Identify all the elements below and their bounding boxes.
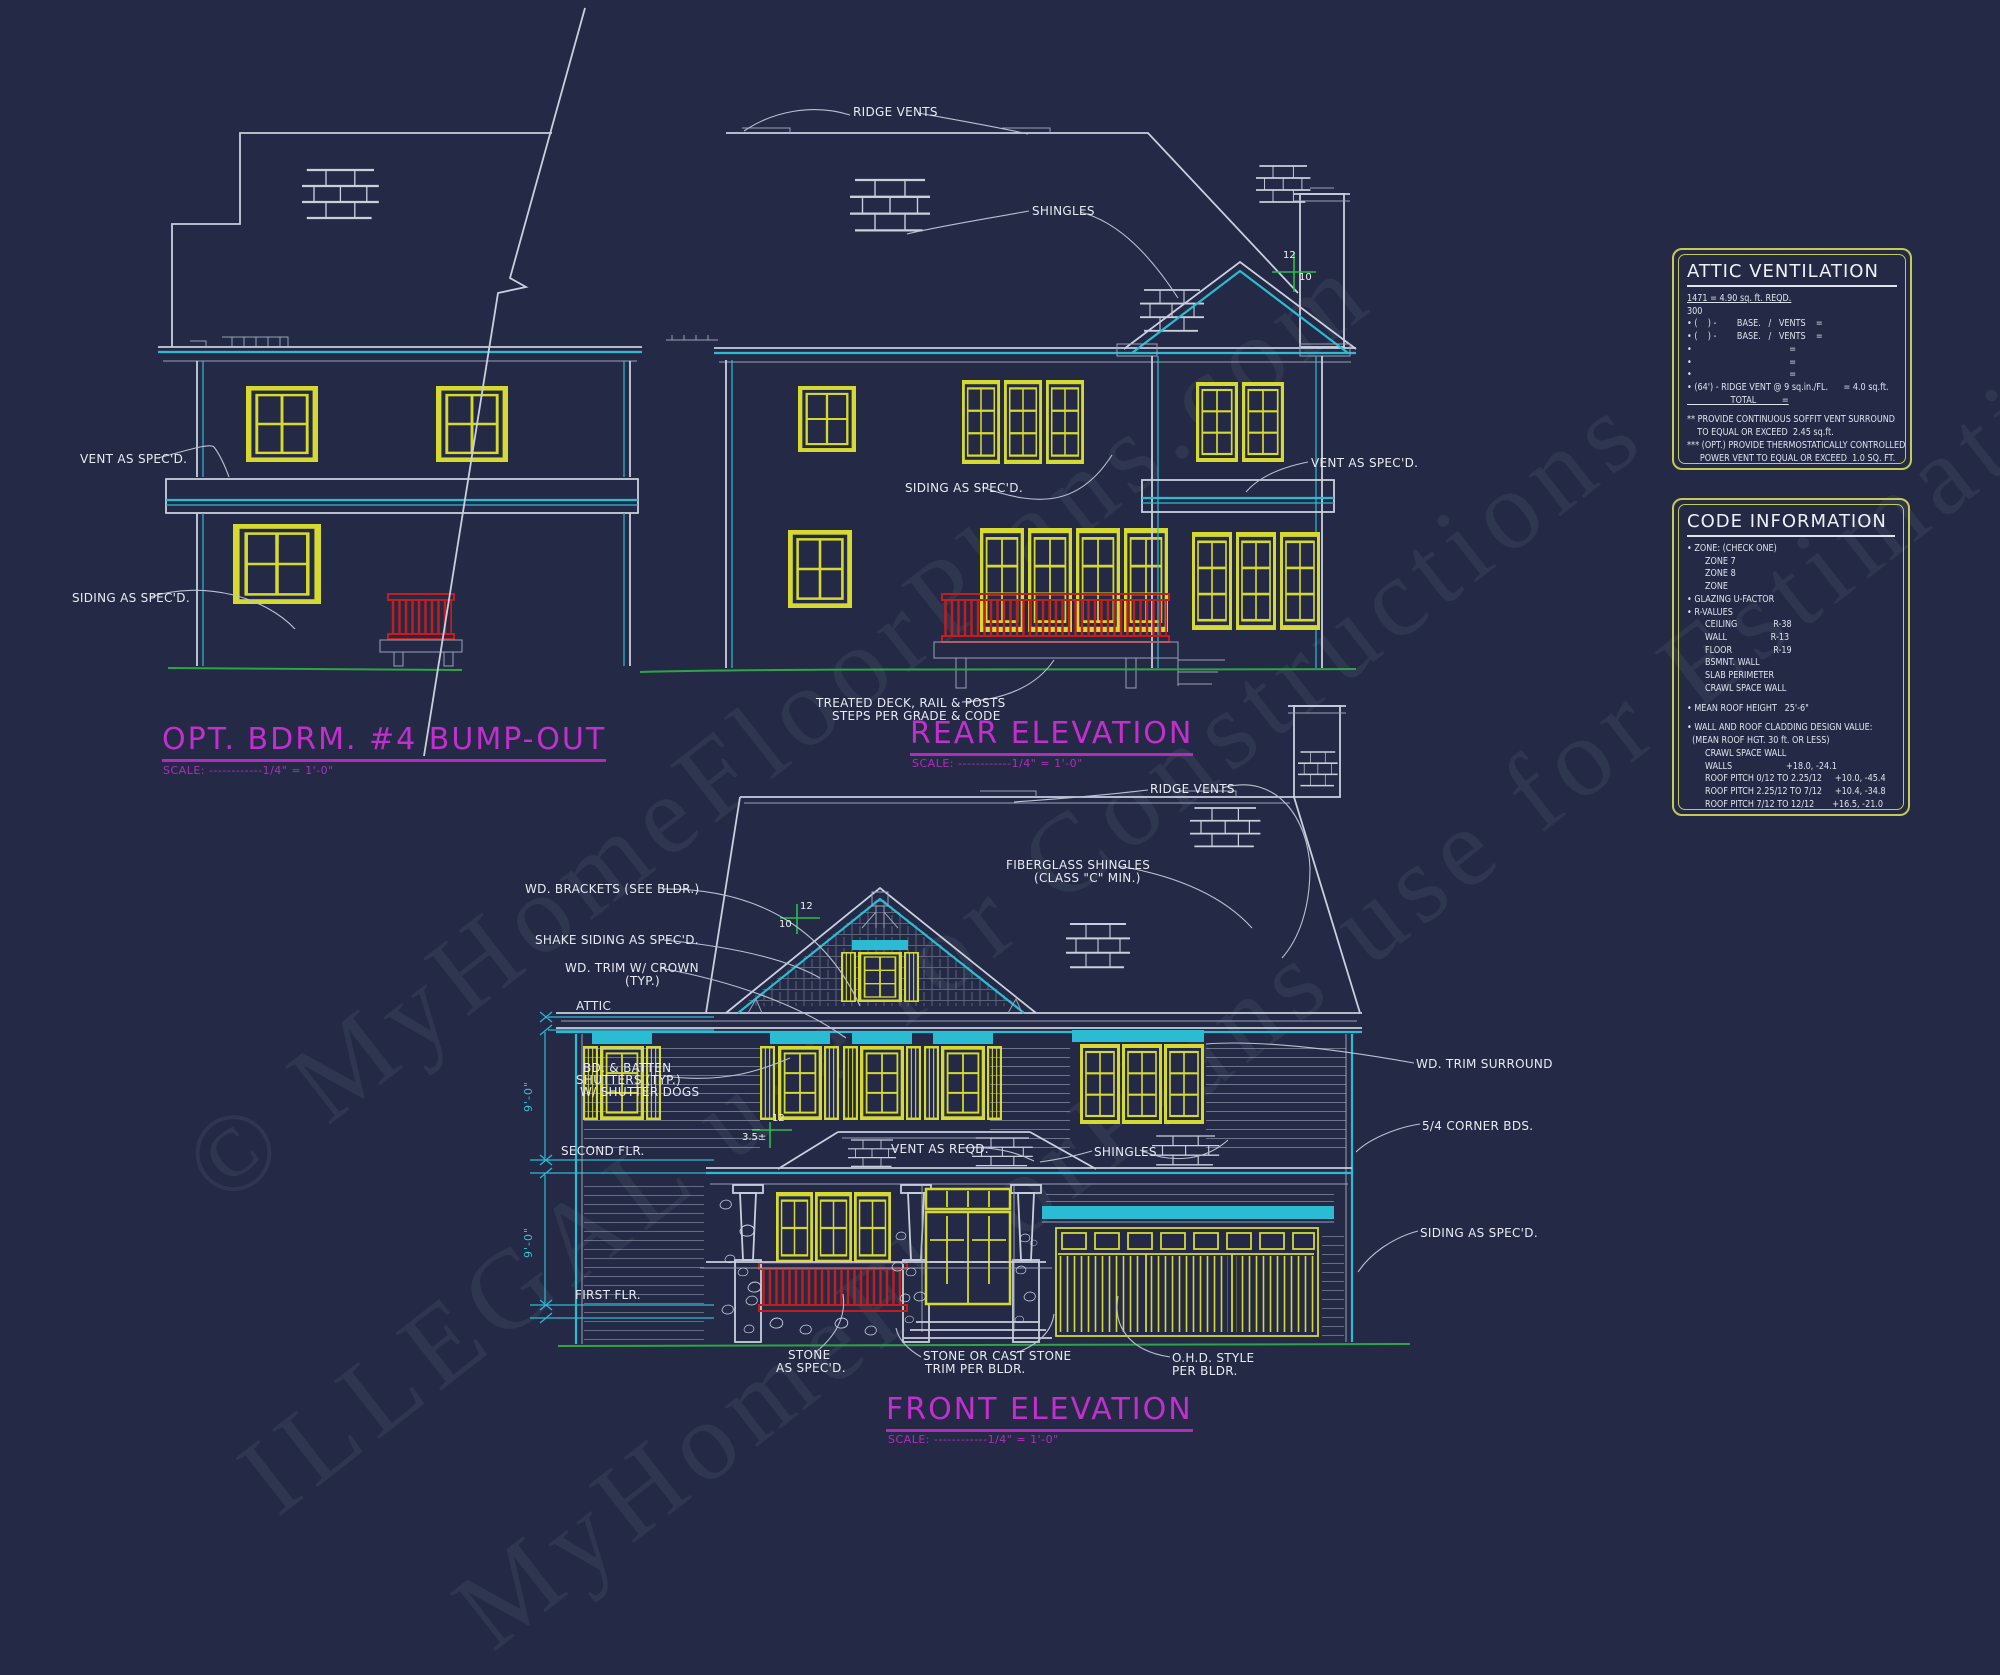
title-front-elevation: FRONT ELEVATION <box>886 1392 1193 1432</box>
siding-hatch <box>1046 1188 1334 1204</box>
scale-bump-out: SCALE: ------------1/4" = 1'-0" <box>163 764 334 777</box>
title-rear-elevation: REAR ELEVATION <box>910 716 1193 756</box>
code-information-panel: CODE INFORMATION • ZONE: (CHECK ONE) ZON… <box>1672 498 1910 816</box>
panel-line: CRAWL SPACE WALL <box>1687 748 1896 761</box>
dim-attic-to-second: 9'-0" <box>522 1081 535 1112</box>
label-front-fiberglass-line2: (CLASS "C" MIN.) <box>1034 871 1141 885</box>
panel-line: • MEAN ROOF HEIGHT 25'-6" <box>1687 703 1896 716</box>
panel-line: SLAB PERIMETER <box>1687 670 1896 683</box>
panel-line: • WALL AND ROOF CLADDING DESIGN VALUE: <box>1687 722 1896 735</box>
panel-line: • = <box>1687 369 1898 382</box>
panel-line: POWER VENT TO EQUAL OR EXCEED 1.0 SQ. FT… <box>1687 453 1898 464</box>
label-front-siding: SIDING AS SPEC'D. <box>1420 1226 1538 1240</box>
label-front-trim-surround: WD. TRIM SURROUND <box>1416 1057 1553 1071</box>
pitch-front-run: 12 <box>800 901 813 912</box>
pitch-porch-run: 12 <box>772 1113 785 1124</box>
siding-hatch <box>990 1040 1070 1154</box>
panel-line: CRAWL SPACE WALL <box>1687 683 1896 696</box>
label-front-ohd-line1: O.H.D. STYLE <box>1172 1351 1254 1365</box>
pitch-porch-rise: 3.5± <box>742 1132 766 1143</box>
panel-line: TO EQUAL OR EXCEED 2.45 sq.ft. <box>1687 427 1898 440</box>
attic-ventilation-title: ATTIC VENTILATION <box>1687 261 1897 287</box>
panel-line: • GLAZING U-FACTOR <box>1687 594 1896 607</box>
panel-line: 1471 = 4.90 sq. ft. REQD. <box>1687 293 1898 306</box>
label-front-cast-stone-line2: TRIM PER BLDR. <box>925 1362 1025 1376</box>
label-front-stone-line1: STONE <box>788 1348 830 1362</box>
panel-line: • ( ) - BASE. / VENTS = <box>1687 318 1898 331</box>
panel-line: FLOOR R-19 <box>1687 645 1896 658</box>
dim-second-to-first: 9'-0" <box>522 1227 535 1258</box>
label-rear-deck-line1: TREATED DECK, RAIL & POSTS <box>816 696 1006 710</box>
code-information-title: CODE INFORMATION <box>1687 511 1895 537</box>
label-front-attic: ATTIC <box>576 999 611 1013</box>
siding-hatch <box>1206 1040 1346 1154</box>
scale-front-elevation: SCALE: ------------1/4" = 1'-0" <box>888 1433 1059 1446</box>
panel-line: ZONE 8 <box>1687 568 1896 581</box>
label-left-siding: SIDING AS SPEC'D. <box>72 591 190 605</box>
panel-line: (MEAN ROOF HGT. 30 ft. OR LESS) <box>1687 735 1896 748</box>
panel-line: • ( ) - BASE. / VENTS = <box>1687 331 1898 344</box>
label-front-trim-crown-line2: (TYP.) <box>625 974 660 988</box>
attic-ventilation-lines: 1471 = 4.90 sq. ft. REQD. 300 • ( ) - BA… <box>1687 293 1898 464</box>
pitch-front-rise: 10 <box>779 919 792 930</box>
rear-elevation <box>640 110 1356 702</box>
label-front-shutters-line3: W/ SHUTTER DOGS <box>580 1085 699 1099</box>
label-front-shingles: SHINGLES <box>1094 1145 1157 1159</box>
panel-line: ZONE 7 <box>1687 556 1896 569</box>
label-rear-ridge-vents: RIDGE VENTS <box>853 105 938 119</box>
label-front-shake-siding: SHAKE SIDING AS SPEC'D. <box>535 933 699 947</box>
label-rear-vent: VENT AS SPEC'D. <box>1311 456 1418 470</box>
label-front-fiberglass-line1: FIBERGLASS SHINGLES <box>1006 858 1150 872</box>
title-bump-out: OPT. BDRM. #4 BUMP-OUT <box>162 722 606 762</box>
label-left-vent: VENT AS SPEC'D. <box>80 452 187 466</box>
attic-ventilation-panel: ATTIC VENTILATION 1471 = 4.90 sq. ft. RE… <box>1672 248 1912 470</box>
panel-line: WALL R-13 <box>1687 632 1896 645</box>
scale-rear-elevation: SCALE: ------------1/4" = 1'-0" <box>912 757 1083 770</box>
label-rear-shingles: SHINGLES <box>1032 204 1095 218</box>
code-information-lines: • ZONE: (CHECK ONE) ZONE 7 ZONE 8 ZONE •… <box>1687 543 1896 810</box>
label-front-corner-bds: 5/4 CORNER BDS. <box>1422 1119 1533 1133</box>
panel-line: • = <box>1687 344 1898 357</box>
pitch-rear-rise: 10 <box>1299 272 1312 283</box>
label-front-cast-stone-line1: STONE OR CAST STONE <box>923 1349 1071 1363</box>
bump-out-elevation <box>150 8 642 756</box>
label-rear-siding: SIDING AS SPEC'D. <box>905 481 1023 495</box>
panel-line: • (64') - RIDGE VENT @ 9 sq.in./FL. = 4.… <box>1687 382 1898 395</box>
panel-line: • = <box>1687 357 1898 370</box>
panel-line: • R-VALUES <box>1687 607 1896 620</box>
label-front-stone-line2: AS SPEC'D. <box>776 1361 846 1375</box>
pitch-rear-run: 12 <box>1283 250 1296 261</box>
panel-line: *** (OPT.) PROVIDE THERMOSTATICALLY CONT… <box>1687 440 1898 453</box>
panel-line: TOTAL = <box>1687 395 1898 408</box>
panel-line: CEILING R-38 <box>1687 619 1896 632</box>
panel-line: ** PROVIDE CONTINUOUS SOFFIT VENT SURROU… <box>1687 414 1898 427</box>
label-front-first-flr: FIRST FLR. <box>575 1288 641 1302</box>
label-front-vent-reqd: VENT AS REQD. <box>891 1142 989 1156</box>
label-front-brackets: WD. BRACKETS (SEE BLDR.) <box>525 882 699 896</box>
panel-line: 300 <box>1687 306 1898 319</box>
panel-line: • ZONE: (CHECK ONE) <box>1687 543 1896 556</box>
panel-line: ROOF PITCH 2.25/12 TO 7/12 +10.4, -34.8 <box>1687 786 1896 799</box>
label-front-trim-crown-line1: WD. TRIM W/ CROWN <box>565 961 699 975</box>
panel-line: BSMNT. WALL <box>1687 657 1896 670</box>
siding-hatch <box>584 1178 704 1340</box>
panel-line: WALLS +18.0, -24.1 <box>1687 761 1896 774</box>
label-front-ohd-line2: PER BLDR. <box>1172 1364 1238 1378</box>
siding-hatch <box>1322 1228 1344 1338</box>
panel-line: ROOF PITCH 0/12 TO 2.25/12 +10.0, -45.4 <box>1687 773 1896 786</box>
panel-line: ZONE <box>1687 581 1896 594</box>
label-front-second-flr: SECOND FLR. <box>561 1144 645 1158</box>
label-front-ridge-vents: RIDGE VENTS <box>1150 782 1235 796</box>
panel-line: ROOF PITCH 7/12 TO 12/12 +16.5, -21.0 <box>1687 799 1896 810</box>
